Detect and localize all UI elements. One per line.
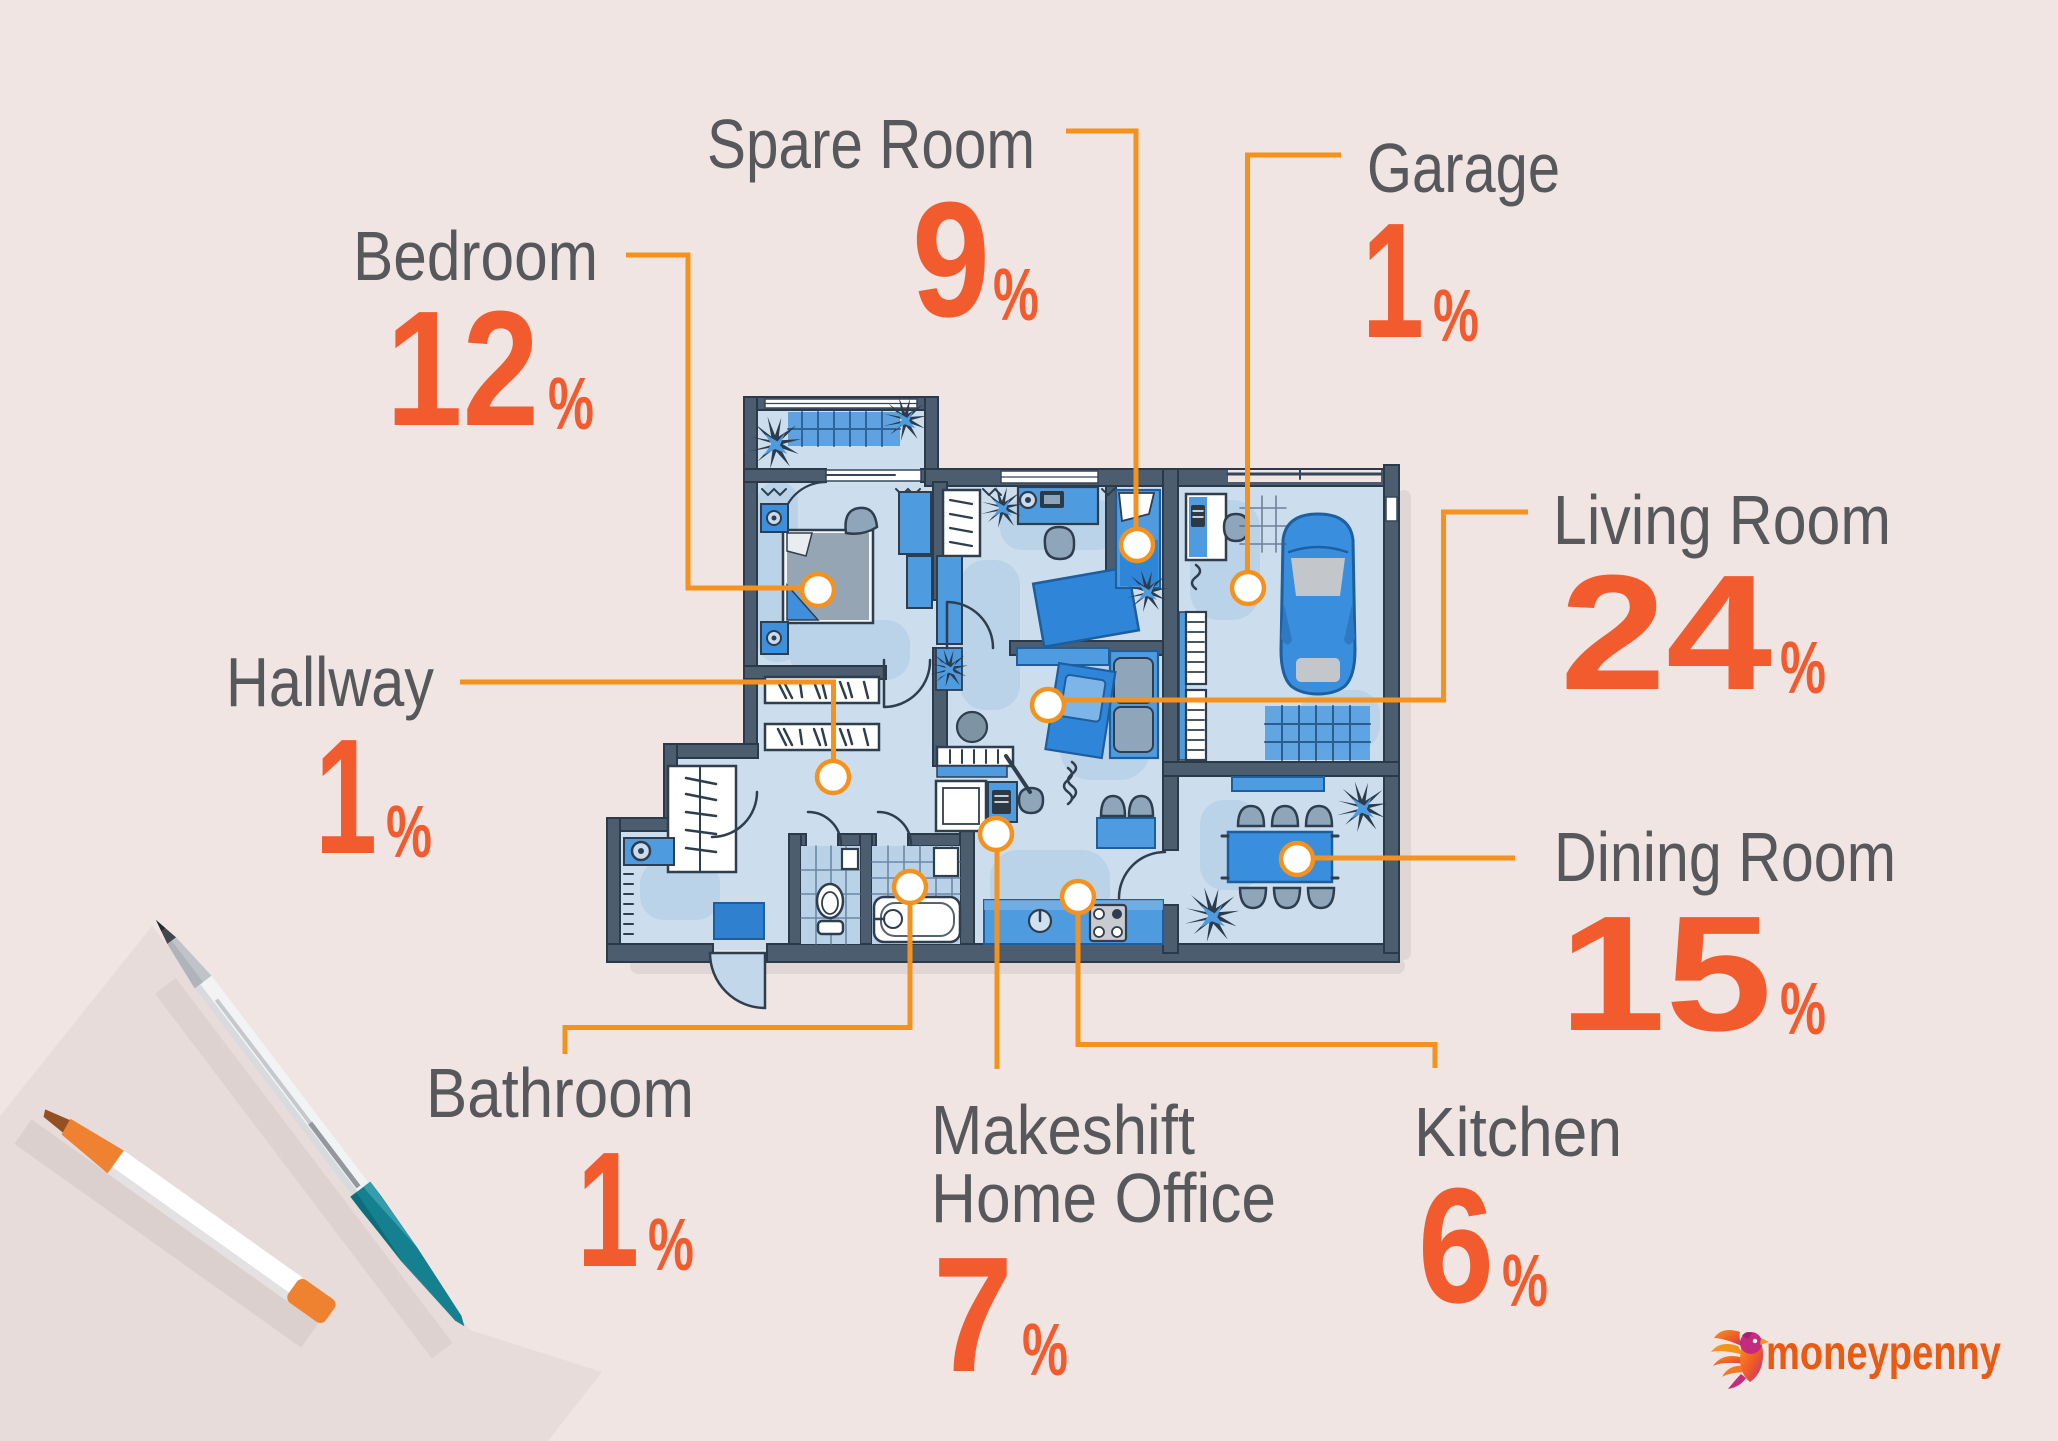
svg-text:1: 1: [1362, 189, 1424, 372]
svg-text:%: %: [648, 1203, 694, 1286]
svg-text:%: %: [1433, 274, 1479, 357]
svg-text:%: %: [386, 790, 432, 873]
svg-text:15: 15: [1559, 882, 1772, 1065]
svg-text:%: %: [1022, 1308, 1068, 1391]
svg-text:24: 24: [1560, 541, 1772, 724]
svg-text:%: %: [548, 362, 594, 445]
svg-text:%: %: [1502, 1239, 1548, 1322]
svg-text:7: 7: [933, 1223, 1013, 1406]
svg-text:1: 1: [315, 705, 377, 888]
svg-text:1: 1: [577, 1118, 639, 1301]
svg-text:12: 12: [386, 277, 539, 460]
svg-text:Makeshift: Makeshift: [931, 1091, 1195, 1169]
svg-text:Bathroom: Bathroom: [426, 1054, 694, 1132]
svg-text:%: %: [1780, 967, 1826, 1050]
svg-text:%: %: [1780, 626, 1826, 709]
svg-text:9: 9: [912, 168, 990, 351]
svg-text:%: %: [993, 253, 1039, 336]
svg-text:6: 6: [1418, 1154, 1494, 1337]
svg-text:moneypenny: moneypenny: [1766, 1327, 2001, 1380]
